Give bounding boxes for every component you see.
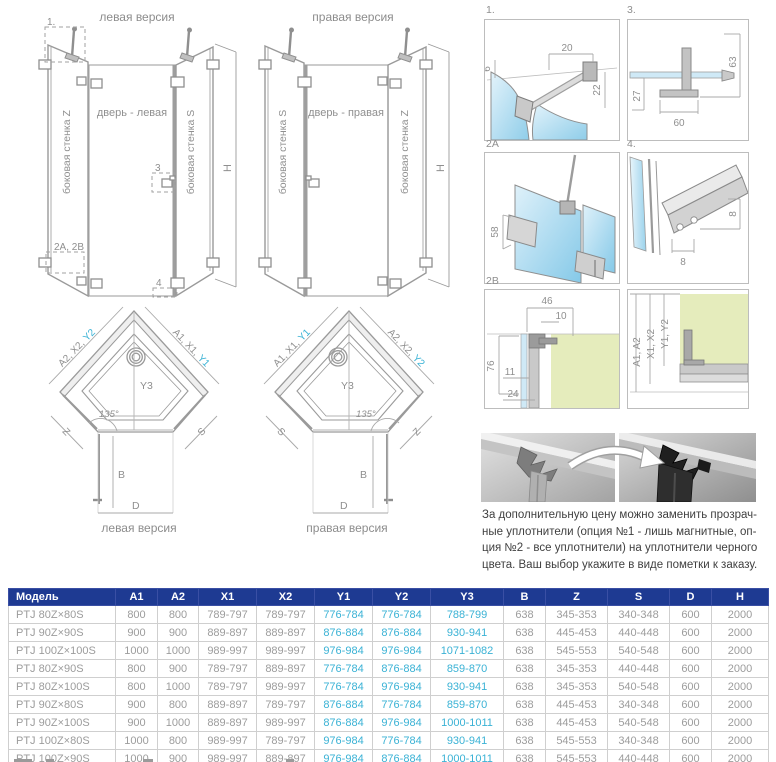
detail-1-label: 1. — [486, 4, 495, 16]
model-cell: PTJ 90Z×80S — [9, 696, 116, 714]
replace-arrow-icon — [560, 436, 670, 482]
model-cell: PTJ 100Z×80S — [9, 732, 116, 750]
callout-2-label: 2A, 2B — [54, 242, 84, 253]
dim-60: 60 — [673, 118, 685, 129]
side-wall-z-label: боковая стенка Z — [61, 109, 73, 193]
column-header-s: S — [608, 589, 670, 606]
detail-4-label: 4. — [627, 138, 636, 150]
dimension-cell: 345-353 — [546, 678, 608, 696]
dimension-cell: 440-448 — [608, 750, 670, 762]
dim-24: 24 — [507, 389, 519, 400]
dimension-cell: 776-784 — [315, 678, 373, 696]
dimension-cell: 930-941 — [431, 624, 504, 642]
dimension-cell: 340-348 — [608, 732, 670, 750]
dim-x1-x2: X1, X2 — [646, 329, 657, 359]
dimension-cell: 900 — [158, 660, 199, 678]
dimension-cell: 2000 — [712, 750, 769, 762]
dimension-cell: 989-997 — [199, 642, 257, 660]
model-cell: PTJ 80Z×80S — [9, 606, 116, 624]
dimension-cell: 989-997 — [257, 714, 315, 732]
height-dim-label: H — [222, 164, 234, 172]
dimension-cell: 545-553 — [546, 732, 608, 750]
dimension-cell: 340-348 — [608, 606, 670, 624]
b-dim-label: B — [360, 469, 367, 481]
dimension-cell: 600 — [670, 606, 712, 624]
dimension-cell: 788-799 — [431, 606, 504, 624]
detail-2b: 46 10 76 11 24 — [484, 289, 620, 409]
dimension-cell: 800 — [116, 660, 158, 678]
dimension-cell: 989-997 — [257, 678, 315, 696]
table-row: PTJ 100Z×90S1000900989-997889-897976-984… — [9, 750, 769, 762]
d-dim-label: D — [340, 500, 348, 512]
dimension-cell: 2000 — [712, 714, 769, 732]
dim-58: 58 — [490, 226, 501, 238]
dimension-cell: 638 — [504, 606, 546, 624]
dimension-cell: 1000 — [158, 678, 199, 696]
glass-pane — [630, 157, 646, 251]
dimension-cell: 800 — [116, 678, 158, 696]
dimension-cell: 2000 — [712, 642, 769, 660]
column-header-d: D — [670, 589, 712, 606]
dimensions-table: МодельA1A2X1X2Y1Y2Y3BZSDHPTJ 80Z×80S8008… — [8, 588, 769, 762]
knob-base — [660, 90, 698, 97]
s-edge-label: S — [196, 426, 209, 439]
dimension-cell: 440-448 — [608, 624, 670, 642]
left-plan-drawing: Y3 A2, X2,Y2 A1, X1,Y1 Z S 135° B D — [35, 300, 250, 562]
b-dim-label: B — [118, 469, 125, 481]
right-plan-drawing: Y3 A1, X1,Y1 A2, X2,Y2 S Z 135° B D — [248, 300, 468, 562]
d-dim-label: D — [132, 500, 140, 512]
detail-3: 63 27 60 — [627, 19, 749, 141]
dimension-cell: 345-353 — [546, 606, 608, 624]
dimension-cell: 638 — [504, 660, 546, 678]
wall-support-rods — [282, 28, 412, 62]
note-line: цвета. Ваш выбор укажите в виде пометки … — [482, 557, 776, 574]
dimension-cell: 1000 — [158, 714, 199, 732]
dimension-cell: 800 — [116, 606, 158, 624]
dimension-cell: 876-884 — [315, 624, 373, 642]
table-row: PTJ 100Z×100S10001000989-997989-997976-9… — [9, 642, 769, 660]
column-header-y1: Y1 — [315, 589, 373, 606]
support-rod — [567, 155, 575, 205]
z-edge-label: Z — [411, 426, 423, 438]
dimension-cell: 445-453 — [546, 624, 608, 642]
right-elevation-drawing: боковая стенка S дверь - правая боковая … — [245, 0, 470, 300]
dimension-cell: 776-784 — [373, 606, 431, 624]
dimension-cell: 540-548 — [608, 678, 670, 696]
dimension-cell: 800 — [158, 606, 199, 624]
dimension-cell: 776-784 — [373, 732, 431, 750]
dimension-cell: 900 — [116, 714, 158, 732]
angle-label: 135° — [356, 409, 376, 420]
dimension-cell: 2000 — [712, 678, 769, 696]
dim-8-bottom: 8 — [680, 257, 686, 268]
dimension-cell: 638 — [504, 732, 546, 750]
table-row: PTJ 80Z×90S800900789-797889-897776-78487… — [9, 660, 769, 678]
dimension-cell: 889-897 — [199, 624, 257, 642]
dimension-cell: 976-984 — [315, 642, 373, 660]
dim-76: 76 — [486, 360, 497, 372]
dimension-cell: 900 — [158, 750, 199, 762]
wall-bracket — [583, 62, 597, 81]
dimension-cell: 1071-1082 — [431, 642, 504, 660]
note-line: ные уплотнители (опция №1 - лишь магнитн… — [482, 524, 776, 541]
dimension-cell: 976-984 — [373, 642, 431, 660]
model-cell: PTJ 80Z×100S — [9, 678, 116, 696]
dimension-cell: 789-797 — [257, 696, 315, 714]
note-line: ция №2 - все уплотнители) на уплотнители… — [482, 540, 776, 557]
dimension-cell: 776-784 — [315, 606, 373, 624]
dim-20: 20 — [561, 43, 573, 54]
dimension-cell: 600 — [670, 678, 712, 696]
dimension-cell: 638 — [504, 624, 546, 642]
left-elevation-drawing: 1. 2A, 2B 3 4 боковая стенка Z дверь - л… — [10, 0, 245, 300]
dimension-cell: 445-453 — [546, 696, 608, 714]
dimension-cell: 930-941 — [431, 678, 504, 696]
callout-3-label: 3 — [155, 163, 161, 174]
column-header-a2: A2 — [158, 589, 199, 606]
dimension-cell: 989-997 — [199, 732, 257, 750]
dim-8-right: 8 — [728, 211, 739, 217]
door-left-label: дверь - левая — [97, 107, 167, 119]
height-dim-label: H — [435, 164, 447, 172]
dimension-cell: 776-784 — [373, 696, 431, 714]
dim-27: 27 — [632, 90, 643, 102]
dimension-cell: 545-553 — [546, 750, 608, 762]
dimension-cell: 600 — [670, 660, 712, 678]
column-header-y2: Y2 — [373, 589, 431, 606]
dimension-cell: 540-548 — [608, 714, 670, 732]
dimension-cell: 900 — [158, 624, 199, 642]
dimension-cell: 976-984 — [373, 678, 431, 696]
dimension-cell: 989-997 — [199, 750, 257, 762]
dimension-cell: 776-784 — [315, 660, 373, 678]
dimension-cell: 600 — [670, 732, 712, 750]
s-edge-label: S — [275, 426, 288, 439]
dimension-cell: 600 — [670, 642, 712, 660]
column-header-y3: Y3 — [431, 589, 504, 606]
dim-y1-y2: Y1, Y2 — [660, 319, 671, 349]
table-row: PTJ 80Z×80S800800789-797789-797776-78477… — [9, 606, 769, 624]
dimension-cell: 540-548 — [608, 642, 670, 660]
side-wall-z-label: боковая стенка Z — [399, 109, 411, 193]
dim-46: 46 — [541, 296, 553, 307]
dimension-cell: 889-897 — [257, 624, 315, 642]
detail-3-label: 3. — [627, 4, 636, 16]
glass-clamp — [684, 330, 692, 364]
dimension-cell: 2000 — [712, 732, 769, 750]
glass-pane — [630, 72, 722, 78]
dimension-cell: 445-453 — [546, 714, 608, 732]
dimension-cell: 876-884 — [373, 624, 431, 642]
dimension-cell: 600 — [670, 714, 712, 732]
column-header-x2: X2 — [257, 589, 315, 606]
dim-a1-a2: A1, A2 — [632, 337, 643, 367]
dimension-cell: 789-797 — [257, 732, 315, 750]
dimension-cell: 800 — [158, 732, 199, 750]
column-header-модель: Модель — [9, 589, 116, 606]
dimension-cell: 2000 — [712, 696, 769, 714]
dimension-cell: 638 — [504, 678, 546, 696]
callout-1-label: 1. — [47, 17, 55, 28]
column-header-x1: X1 — [199, 589, 257, 606]
glass-pane — [521, 334, 527, 408]
table-row: PTJ 100Z×80S1000800989-997789-797976-984… — [9, 732, 769, 750]
z-edge-label: Z — [60, 426, 72, 438]
callout-4-label: 4 — [156, 278, 162, 289]
dimension-cell: 976-984 — [315, 750, 373, 762]
dimension-cell: 789-797 — [257, 606, 315, 624]
dimension-cell: 440-448 — [608, 660, 670, 678]
tray-profile — [680, 364, 748, 374]
wall-section — [551, 334, 619, 408]
dimension-cell: 600 — [670, 750, 712, 762]
dimension-cell: 340-348 — [608, 696, 670, 714]
model-cell: PTJ 90Z×90S — [9, 624, 116, 642]
dimension-cell: 638 — [504, 750, 546, 762]
dimension-cell: 900 — [116, 624, 158, 642]
table-row: PTJ 90Z×80S900800889-897789-797876-88477… — [9, 696, 769, 714]
detail-measure-reference: A1, A2 X1, X2 Y1, Y2 — [627, 289, 749, 409]
dimension-cell: 876-884 — [315, 714, 373, 732]
dimension-cell: 1000-1011 — [431, 750, 504, 762]
dimension-cell: 1000 — [116, 642, 158, 660]
dimension-cell: 600 — [670, 624, 712, 642]
column-header-h: H — [712, 589, 769, 606]
dimension-cell: 789-797 — [199, 660, 257, 678]
spec-sheet: левая версия правая версия левая версия … — [0, 0, 776, 762]
dimension-cell: 976-984 — [315, 732, 373, 750]
column-header-z: Z — [546, 589, 608, 606]
y3-dim-label: Y3 — [140, 380, 153, 392]
table-row: PTJ 90Z×100S9001000889-897989-997876-884… — [9, 714, 769, 732]
dimension-cell: 2000 — [712, 624, 769, 642]
detail-4: 8 8 — [627, 152, 749, 284]
detail-2a: 58 — [484, 152, 620, 284]
dimension-cell: 2000 — [712, 660, 769, 678]
dimension-cell: 789-797 — [199, 678, 257, 696]
dimension-cell: 638 — [504, 714, 546, 732]
knob-stem — [682, 48, 691, 90]
dimension-cell: 976-984 — [373, 714, 431, 732]
model-cell: PTJ 100Z×100S — [9, 642, 116, 660]
dimension-cell: 859-870 — [431, 660, 504, 678]
dimension-cell: 876-884 — [315, 696, 373, 714]
dimension-cell: 1000-1011 — [431, 714, 504, 732]
dim-11: 11 — [505, 367, 516, 378]
dimension-cell: 1000 — [158, 642, 199, 660]
dimension-cell: 859-870 — [431, 696, 504, 714]
detail-2b-label: 2B — [486, 275, 499, 287]
dimension-cell: 638 — [504, 696, 546, 714]
dimension-cell: 889-897 — [199, 696, 257, 714]
dimension-cell: 876-884 — [373, 660, 431, 678]
table-row: PTJ 80Z×100S8001000789-797989-997776-784… — [9, 678, 769, 696]
dimension-cell: 900 — [116, 696, 158, 714]
dimension-cell: 545-553 — [546, 642, 608, 660]
seal-option-note: За дополнительную цену можно заменить пр… — [482, 507, 776, 573]
table-row: PTJ 90Z×90S900900889-897889-897876-88487… — [9, 624, 769, 642]
note-line: За дополнительную цену можно заменить пр… — [482, 507, 776, 524]
door-right-label: дверь - правая — [308, 107, 384, 119]
dim-6: 6 — [485, 66, 493, 72]
wall-support-rods — [65, 27, 194, 62]
dimension-cell: 889-897 — [257, 660, 315, 678]
dimension-cell: 1000 — [116, 732, 158, 750]
table-header-row: МодельA1A2X1X2Y1Y2Y3BZSDH — [9, 589, 769, 606]
dimension-cell: 2000 — [712, 606, 769, 624]
column-header-a1: A1 — [116, 589, 158, 606]
dim-10: 10 — [555, 311, 567, 322]
detail-2a-label: 2A — [486, 138, 499, 150]
side-wall-s-label: боковая стенка S — [277, 110, 289, 194]
dimension-cell: 800 — [158, 696, 199, 714]
dim-22: 22 — [592, 84, 603, 96]
y3-dim-label: Y3 — [341, 380, 354, 392]
detail-1: 20 6 22 — [484, 19, 620, 141]
column-header-b: B — [504, 589, 546, 606]
model-cell: PTJ 80Z×90S — [9, 660, 116, 678]
dimension-cell: 789-797 — [199, 606, 257, 624]
side-wall-s-label: боковая стенка S — [185, 110, 197, 194]
dimension-cell: 600 — [670, 696, 712, 714]
dimension-cell: 889-897 — [199, 714, 257, 732]
dimension-cell: 989-997 — [257, 642, 315, 660]
model-cell: PTJ 90Z×100S — [9, 714, 116, 732]
dimension-cell: 345-353 — [546, 660, 608, 678]
dimension-cell: 876-884 — [373, 750, 431, 762]
dimension-cell: 638 — [504, 642, 546, 660]
dim-63: 63 — [728, 56, 739, 68]
dimension-cell: 930-941 — [431, 732, 504, 750]
